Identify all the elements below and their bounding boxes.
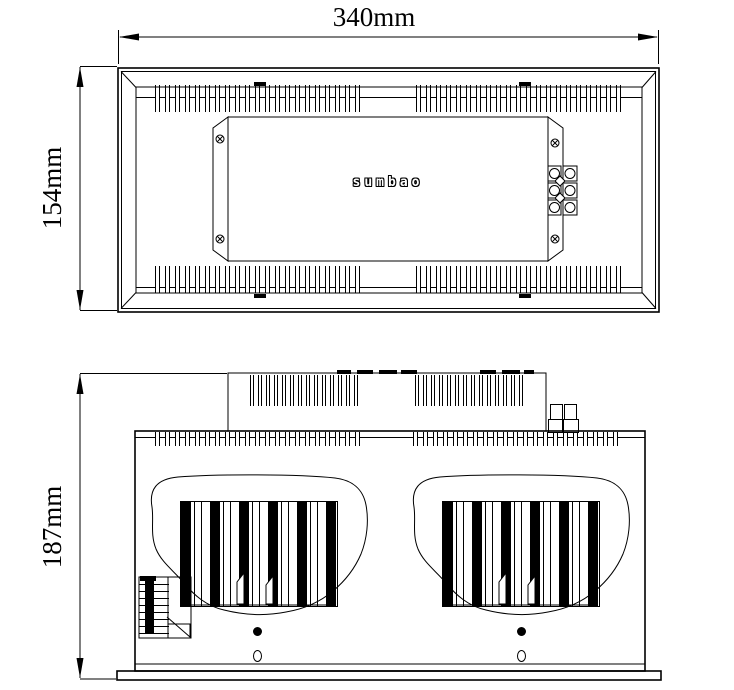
plate-top-dashes	[337, 370, 534, 374]
front-plate-fin-group-right	[415, 375, 523, 406]
arrowhead-icon	[119, 34, 139, 41]
top-view-fin-row-bottom-left	[155, 266, 365, 293]
top-view-fin-row-top-left	[155, 85, 365, 112]
base-flange	[117, 671, 661, 680]
arrowhead-icon	[77, 658, 84, 678]
brand-logo-text: sumbao	[326, 174, 450, 192]
heatsink-bars-right	[442, 501, 600, 607]
top-view-fin-row-bottom-right	[416, 266, 626, 293]
dimension-label-depth: 154mm	[37, 143, 67, 233]
plate-fin-group-top-left	[250, 118, 360, 150]
front-binding-post-base-left	[548, 419, 563, 433]
technical-drawing-canvas: 340mm 154mm 187mm sumbao	[0, 0, 734, 690]
terminal-posts	[550, 169, 576, 213]
plate-fin-group-bottom-right	[415, 228, 525, 261]
front-binding-post-base-right	[563, 419, 579, 433]
dimension-label-height: 187mm	[37, 482, 67, 572]
cable-bracket-ribs	[139, 580, 169, 634]
arrowhead-icon	[77, 67, 84, 87]
terminal-diamond	[555, 193, 565, 203]
front-screw-icon-left	[253, 627, 262, 636]
front-binding-post-small-left	[550, 404, 563, 420]
screw-icon	[216, 235, 224, 243]
terminal-diamond	[555, 176, 565, 186]
top-view-fin-row-top-right	[416, 85, 626, 112]
screw-icon	[551, 235, 559, 243]
front-hole-right	[517, 650, 526, 662]
dimension-340mm	[119, 30, 659, 64]
front-binding-post-small-right	[564, 404, 577, 420]
front-plate-fin-group-left	[250, 375, 358, 406]
front-body-fin-teeth-left	[155, 432, 363, 446]
front-body-fin-teeth-right	[413, 432, 621, 446]
terminal-block	[548, 166, 577, 215]
arrowhead-icon	[77, 374, 84, 394]
heatsink-bars-left	[180, 501, 338, 607]
plate-flange-left	[213, 117, 228, 261]
plate-fin-group-bottom-left	[250, 228, 360, 261]
arrowhead-icon	[77, 290, 84, 310]
screw-icon	[216, 135, 224, 143]
front-screw-icon-right	[517, 627, 526, 636]
dimension-label-width: 340mm	[294, 2, 454, 32]
dimension-154mm	[77, 67, 118, 311]
front-hole-left	[253, 650, 262, 662]
arrowhead-icon	[638, 34, 658, 41]
plate-fin-group-top-right	[415, 118, 525, 150]
plate-flange-right	[548, 117, 563, 261]
screw-icon	[551, 139, 559, 147]
